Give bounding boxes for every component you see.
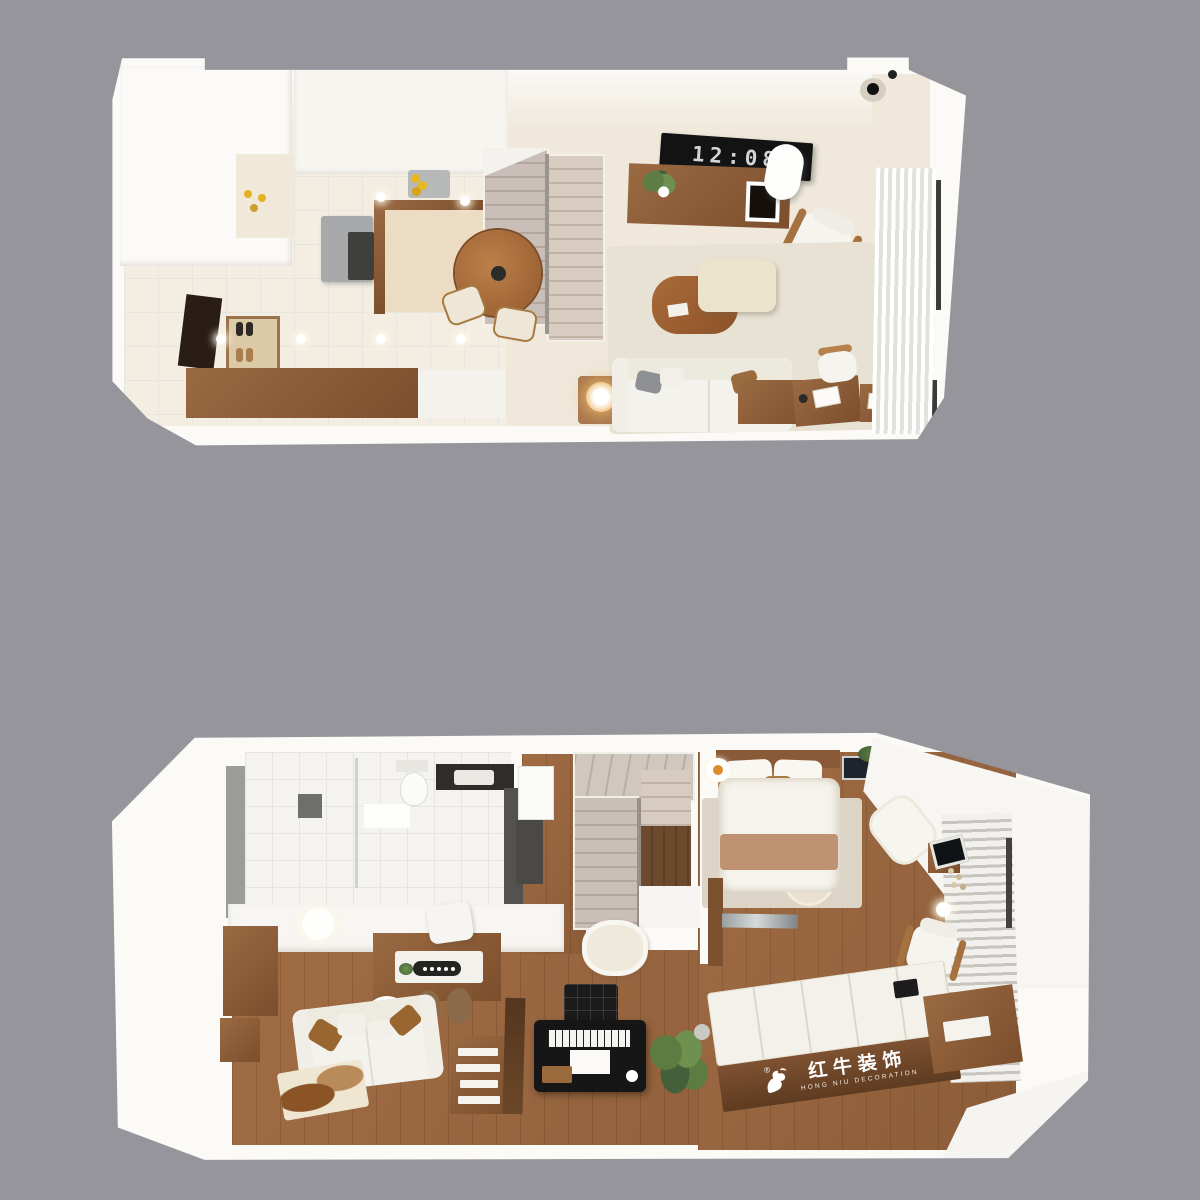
bed-foot-rail <box>708 878 723 966</box>
bed-throw-blanket <box>720 834 838 870</box>
console-plant-sprig <box>399 963 413 975</box>
piano-caster <box>626 1070 638 1082</box>
slippers-tan <box>236 348 243 362</box>
sofa-seat-gap <box>708 380 710 432</box>
desk-chair <box>814 343 861 384</box>
floor-lamp <box>936 902 951 917</box>
bath-mat <box>364 804 410 828</box>
understair-wood-wall <box>641 826 691 886</box>
tv-on-footboard <box>722 913 798 928</box>
rack-books <box>456 1064 500 1072</box>
counter-wood-edge-side <box>374 200 385 314</box>
downlight <box>376 192 386 202</box>
open-book <box>812 386 841 409</box>
window-frame-dark <box>936 180 941 310</box>
downlight <box>296 334 306 344</box>
utility-column-dark <box>516 820 543 884</box>
window-frame-dark <box>1006 838 1012 928</box>
upper-floor-plan: 12:08 <box>108 50 988 464</box>
plant-pot <box>694 1024 710 1040</box>
shoes-dark <box>236 322 243 336</box>
render-canvas: 12:08 <box>0 0 1200 1200</box>
entry-sideboard-white <box>418 370 506 418</box>
downlight <box>456 334 466 344</box>
stair-landing <box>639 886 701 928</box>
piano-wood-box <box>542 1066 572 1083</box>
speaker-oval <box>413 961 461 976</box>
desk-lamp <box>798 394 808 404</box>
pillow-cream <box>337 1014 365 1036</box>
camera-lens-icon <box>867 83 879 95</box>
downlight <box>216 334 226 344</box>
entry-sideboard <box>186 368 418 418</box>
stair-flight-up <box>549 156 603 340</box>
magazine <box>667 303 688 318</box>
flower-vase <box>658 186 669 197</box>
counter-wood-edge-top <box>376 200 488 210</box>
stair-flight-main <box>575 798 637 928</box>
dining-table-centerpiece <box>491 266 506 281</box>
rack-books <box>458 1096 500 1104</box>
kitchen-counter <box>294 66 508 174</box>
camera-dot-icon <box>888 70 897 79</box>
stair-railing <box>545 154 549 334</box>
toilet-bowl <box>400 772 428 806</box>
bedside-lamp-bulb <box>713 765 723 775</box>
wall-gadget-black <box>893 978 919 998</box>
registered-mark: ® <box>764 1065 771 1075</box>
sheer-curtains <box>872 167 937 434</box>
shelf-books <box>943 1016 991 1042</box>
wall-cabinet <box>223 926 278 1016</box>
piano-bench <box>564 984 618 1024</box>
piano-keys <box>548 1030 630 1047</box>
vanity-sink <box>454 770 494 785</box>
shower-glass <box>355 758 358 888</box>
watermark-text-group: 红牛装饰 HONG NIU DECORATION <box>798 1048 920 1093</box>
pantry-items <box>244 190 252 198</box>
window-frame-dark <box>932 380 937 440</box>
shower-niche <box>298 794 322 818</box>
speaker-dots <box>423 967 427 971</box>
lemons <box>411 174 420 183</box>
desk-chair-seat <box>817 349 859 384</box>
sofa-arm <box>612 358 628 432</box>
coffee-table-tray <box>698 260 776 312</box>
downlight <box>376 334 386 344</box>
piano <box>534 1020 646 1092</box>
pendant-lamp <box>302 908 334 940</box>
stove <box>348 232 374 280</box>
sofa-pillow-cream <box>660 368 684 386</box>
folding-screen-panel <box>502 998 525 1114</box>
sheet-music <box>570 1050 610 1074</box>
washer <box>518 766 554 820</box>
white-stool <box>426 901 475 945</box>
downlight <box>460 196 470 206</box>
toilet-tank <box>396 760 428 772</box>
floor-pouf <box>582 920 648 976</box>
rack-books <box>458 1048 498 1056</box>
platform-headboard-shelf <box>923 984 1023 1074</box>
rack-books <box>460 1080 498 1088</box>
stair-flight-side <box>641 770 691 826</box>
dried-flowers <box>948 868 954 874</box>
lower-floor-plan: ® 红牛装饰 HONG NIU DECORATION <box>108 718 1093 1168</box>
wall-cabinet-small <box>220 1018 260 1062</box>
